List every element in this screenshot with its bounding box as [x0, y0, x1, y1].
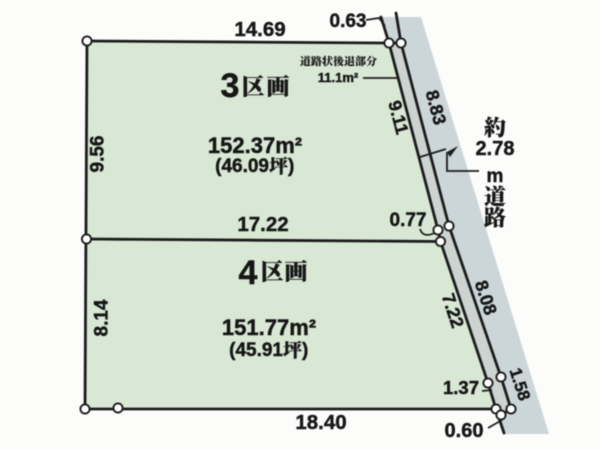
- svg-text:): ): [302, 340, 308, 361]
- svg-text:2.78: 2.78: [476, 138, 515, 160]
- svg-text:8.14: 8.14: [92, 299, 113, 336]
- svg-text:3: 3: [221, 67, 240, 105]
- svg-text:(46.09: (46.09: [215, 156, 269, 177]
- svg-text:151.77m²: 151.77m²: [222, 315, 316, 340]
- svg-text:9.56: 9.56: [88, 136, 109, 173]
- svg-text:152.37m²: 152.37m²: [208, 133, 302, 158]
- svg-text:): ): [288, 156, 294, 177]
- svg-text:18.40: 18.40: [295, 411, 346, 434]
- svg-text:11.1m²: 11.1m²: [318, 70, 359, 85]
- svg-text:0.60: 0.60: [445, 420, 484, 442]
- svg-text:1.37: 1.37: [443, 377, 479, 398]
- svg-text:0.77: 0.77: [390, 210, 427, 231]
- svg-text:m: m: [487, 166, 504, 187]
- svg-text:0.63: 0.63: [330, 11, 367, 32]
- svg-text:17.22: 17.22: [237, 213, 288, 236]
- svg-text:4: 4: [239, 254, 258, 292]
- svg-text:14.69: 14.69: [234, 18, 285, 41]
- svg-text:(45.91: (45.91: [229, 340, 283, 361]
